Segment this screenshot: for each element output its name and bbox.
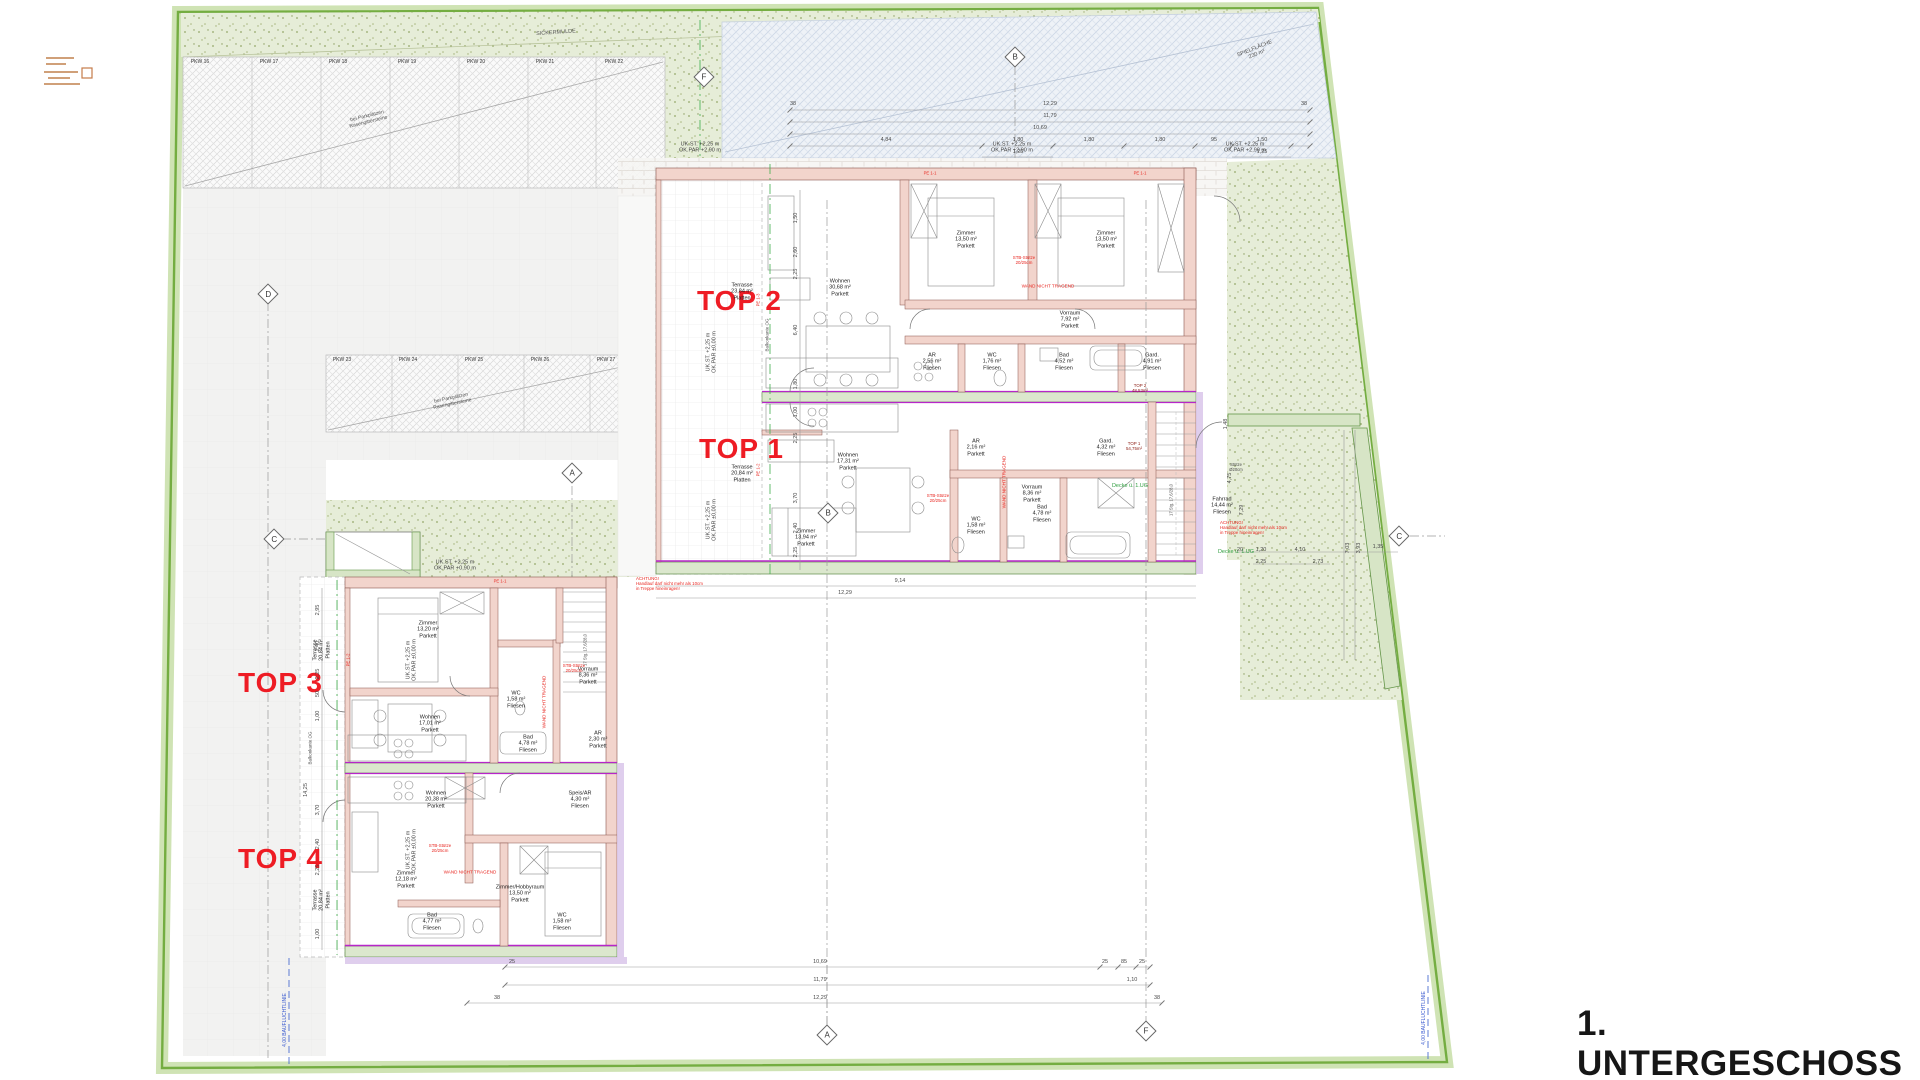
- room-label: Terrasse 20,84 m² Platten: [731, 464, 753, 483]
- parking-stall-label: PKW 23: [333, 358, 351, 364]
- parking-stall-label: PKW 27: [597, 358, 615, 364]
- elevation-note: UK.ST. +2,25 m OK.PAR ±0,00 m: [706, 499, 719, 541]
- dim-label: 25: [509, 959, 515, 965]
- section-marker-f: F: [693, 66, 714, 87]
- dim-label: 95: [1211, 137, 1217, 143]
- room-label: Vorraum 7,92 m² Parkett: [1060, 310, 1081, 329]
- red-note: STB-Stütze 20/25cm: [927, 493, 949, 503]
- room-label: Zimmer 12,18 m² Parkett: [395, 870, 417, 889]
- parking-stall-label: PKW 22: [605, 60, 623, 66]
- dim-label: 1,25: [1257, 149, 1268, 155]
- dim-label: 2,25: [1256, 559, 1267, 565]
- parking-stall-label: PKW 19: [398, 60, 416, 66]
- dim-label: 12,29: [838, 590, 852, 596]
- section-marker-f: F: [1135, 1020, 1156, 1041]
- elevation-note: UK.ST. +2,25 m OK.PAR ±0,00 m: [406, 639, 419, 681]
- red-note: PE 1-3: [757, 294, 762, 307]
- dim-label: 2,25: [315, 865, 321, 876]
- room-label: AR 2,16 m² Parkett: [967, 438, 986, 457]
- section-marker-letter: A: [569, 469, 574, 478]
- dim-label: 2,25: [793, 547, 799, 558]
- dim-label: 11,79: [813, 977, 826, 983]
- elevation-note: UK.ST. +2,25 m OK.PAR ±0,00 m: [406, 829, 419, 871]
- section-marker-c: C: [263, 528, 284, 549]
- room-label: Terrasse 23,84 m² Platten: [731, 282, 753, 301]
- dim-label: 2,40: [315, 641, 321, 652]
- room-label: Wohnen 17,31 m² Parkett: [837, 452, 859, 471]
- dim-label: Stütze Ø20cm: [1229, 463, 1243, 473]
- red-note: ACHTUNG! Handlauf darf nicht mehr als 10…: [1220, 520, 1287, 536]
- section-marker-d: D: [257, 283, 278, 304]
- room-label: Bad 4,78 m² Fliesen: [519, 734, 538, 753]
- parking-stall-label: PKW 25: [465, 358, 483, 364]
- dim-label: 4,75: [1227, 473, 1233, 484]
- parking-stall-label: PKW 17: [260, 60, 278, 66]
- dim-label: 1,50: [793, 213, 799, 224]
- room-label: Speis/AR 4,30 m² Fliesen: [569, 790, 592, 809]
- dim-label: 38: [494, 995, 500, 1001]
- room-label: Wohnen 30,68 m² Parkett: [829, 278, 851, 297]
- dim-label: 38: [1154, 995, 1160, 1001]
- section-marker-a: A: [816, 1024, 837, 1045]
- elevation-note: UK.ST. +2,25 m OK.PAR ±0,00 m: [706, 331, 719, 373]
- dim-label: 17 Stg. 17,6/28,0: [1170, 484, 1175, 516]
- dim-label: 1,80: [1084, 137, 1095, 143]
- red-note: PE 1-1: [924, 172, 937, 177]
- red-note: STB-Stütze 20/25cm: [1013, 255, 1035, 265]
- dim-label: 7,03: [1345, 543, 1351, 554]
- dim-label: 4,84: [881, 137, 892, 143]
- room-label: AR 2,30 m² Parkett: [589, 730, 608, 749]
- dim-label: 38: [1301, 101, 1307, 107]
- parking-stall-label: PKW 26: [531, 358, 549, 364]
- room-label: Zimmer 13,50 m² Parkett: [1095, 230, 1117, 249]
- room-label: Zimmer/Hobbyraum 13,50 m² Parkett: [496, 884, 545, 903]
- section-marker-b: B: [817, 502, 838, 523]
- dim-label: 2,95: [315, 605, 321, 616]
- dim-label: 12,29: [813, 995, 827, 1001]
- parking-note: bei Parkplätzen Rasengittersteine: [348, 110, 389, 131]
- annotation-layer: SICKERMULDESPIELFLÄCHE 230 m²4,00 BAUFLU…: [0, 0, 1920, 1080]
- room-label: WC 1,58 m² Fliesen: [967, 516, 986, 535]
- dim-label: 1,20: [1256, 547, 1267, 553]
- red-note: WAND NICHT TRAGEND: [444, 869, 497, 874]
- dim-label: 2,73: [1313, 559, 1324, 565]
- site-text: Balkonkante OG: [764, 318, 769, 351]
- dim-label: 14,25: [303, 783, 309, 797]
- section-marker-letter: D: [265, 290, 271, 299]
- site-text: 4,00 BAUFLUCHTLINIE: [1422, 991, 1428, 1045]
- dim-label: 50: [315, 691, 321, 697]
- dim-label: 85: [1121, 959, 1127, 965]
- room-label: Zimmer 13,50 m² Parkett: [955, 230, 977, 249]
- dim-label: 10,69: [813, 959, 827, 965]
- dim-label: 9,14: [895, 578, 906, 584]
- dim-label: 20: [1237, 547, 1243, 553]
- red-note: WAND NICHT TRAGEND: [1001, 456, 1006, 509]
- dim-label: 25: [1102, 959, 1108, 965]
- dim-label: 3,70: [793, 493, 799, 504]
- room-label: Bad 4,52 m² Fliesen: [1055, 352, 1074, 371]
- room-label: Gard. 4,32 m² Fliesen: [1097, 438, 1116, 457]
- site-text: SICKERMULDE: [536, 28, 576, 37]
- red-note: PE 1-1: [1134, 172, 1147, 177]
- dim-label: 1,00: [315, 929, 321, 940]
- elevation-note: UK.ST. +2,25 m OK.PAR +0,90 m: [434, 560, 476, 573]
- room-label: AR 2,56 m² Fliesen: [923, 352, 942, 371]
- section-marker-letter: C: [1396, 532, 1402, 541]
- elevation-note: UK.ST. +2,25 m OK.PAR +2,90 m: [679, 142, 721, 155]
- dim-label: 2,40: [793, 523, 799, 534]
- dim-label: 25: [1139, 959, 1145, 965]
- dim-label: 1,00: [793, 407, 799, 418]
- room-label: WC 1,58 m² Fliesen: [553, 912, 572, 931]
- site-text: Balkonkante OG: [307, 731, 312, 764]
- parking-stall-label: PKW 20: [467, 60, 485, 66]
- dim-label: 1,80: [793, 379, 799, 390]
- dim-label: 2,25: [793, 433, 799, 444]
- room-label: Terrasse 20,84 m² Platten: [312, 889, 331, 911]
- room-label: Wohnen 20,38 m² Parkett: [425, 790, 447, 809]
- section-marker-letter: B: [1012, 53, 1017, 62]
- room-label: WC 1,76 m² Fliesen: [983, 352, 1002, 371]
- dim-label: 38: [790, 101, 796, 107]
- green-note: Decke ü. 1.UG: [1112, 483, 1148, 489]
- parking-stall-label: PKW 21: [536, 60, 554, 66]
- parking-stall-label: PKW 16: [191, 60, 209, 66]
- room-label: Zimmer 13,20 m² Parkett: [417, 620, 439, 639]
- dim-label: 3,93: [1356, 543, 1362, 554]
- dim-label: 1,50: [1257, 137, 1268, 143]
- dim-label: 11,79: [1043, 113, 1056, 119]
- dim-label: 10,69: [1033, 125, 1047, 131]
- red-note: PE 1-1: [494, 580, 507, 585]
- section-marker-letter: B: [825, 509, 830, 518]
- section-marker-letter: F: [1144, 1026, 1149, 1035]
- dim-label: 1,10: [1127, 977, 1138, 983]
- dim-label: 1,00: [315, 711, 321, 722]
- room-label: Bad 4,78 m² Fliesen: [1033, 504, 1052, 523]
- section-marker-a: A: [561, 462, 582, 483]
- red-note: ACHTUNG! Handlauf darf nicht mehr als 10…: [636, 576, 703, 592]
- red-note: TOP 2 48,53m²: [1132, 383, 1148, 393]
- dim-label: 12,29: [1043, 101, 1057, 107]
- floorplan-canvas: TOP 2 TOP 1 TOP 3 TOP 4 1. UNTERGESCHOSS…: [0, 0, 1920, 1080]
- room-label: Gard. 4,91 m² Fliesen: [1143, 352, 1162, 371]
- parking-stall-label: PKW 24: [399, 358, 417, 364]
- section-marker-c: C: [1388, 525, 1409, 546]
- room-label: Vorraum 8,36 m² Parkett: [1022, 484, 1043, 503]
- site-text: SPIELFLÄCHE 230 m²: [1236, 39, 1275, 65]
- red-note: PE 1-2: [757, 464, 762, 477]
- parking-note: bei Parkplätzen Rasengittersteine: [432, 392, 473, 412]
- dim-label: 1,35: [1373, 544, 1384, 550]
- section-marker-letter: A: [824, 1031, 829, 1040]
- site-text: 4,00 BAUFLUCHTLINIE: [283, 993, 289, 1047]
- section-marker-letter: F: [702, 72, 707, 81]
- dim-label: 1,80: [1013, 137, 1024, 143]
- red-note: WAND NICHT TRAGEND: [541, 676, 546, 729]
- dim-label: 3,70: [315, 805, 321, 816]
- dim-label: 2,25: [315, 669, 321, 680]
- parking-stall-label: PKW 18: [329, 60, 347, 66]
- dim-label: 6,40: [793, 325, 799, 336]
- room-label: Bad 4,77 m² Fliesen: [423, 912, 442, 931]
- section-marker-b: B: [1004, 46, 1025, 67]
- dim-label: 2,25: [793, 269, 799, 280]
- dim-label: 1,48: [1223, 419, 1229, 430]
- dim-label: 2,40: [315, 839, 321, 850]
- red-note: PE 1-2: [347, 654, 352, 667]
- section-marker-letter: C: [271, 535, 277, 544]
- dim-label: 4,10: [1295, 547, 1306, 553]
- red-note: TOP 1 54,75m²: [1126, 441, 1142, 451]
- red-note: STB-Stütze 20/25cm: [429, 843, 451, 853]
- room-label: Fahrrad 14,44 m² Fliesen: [1211, 496, 1233, 515]
- red-note: WAND NICHT TRAGEND: [1022, 283, 1075, 288]
- room-label: Wohnen 17,01 m² Parkett: [419, 714, 441, 733]
- dim-label: 7,29: [1239, 505, 1245, 516]
- dim-label: 2,60: [793, 247, 799, 258]
- dim-label: 1,25: [1013, 149, 1024, 155]
- dim-label: 1,80: [1155, 137, 1166, 143]
- room-label: WC 1,58 m² Fliesen: [507, 690, 526, 709]
- dim-label: 17 Stg. 17,6/28,0: [584, 634, 589, 666]
